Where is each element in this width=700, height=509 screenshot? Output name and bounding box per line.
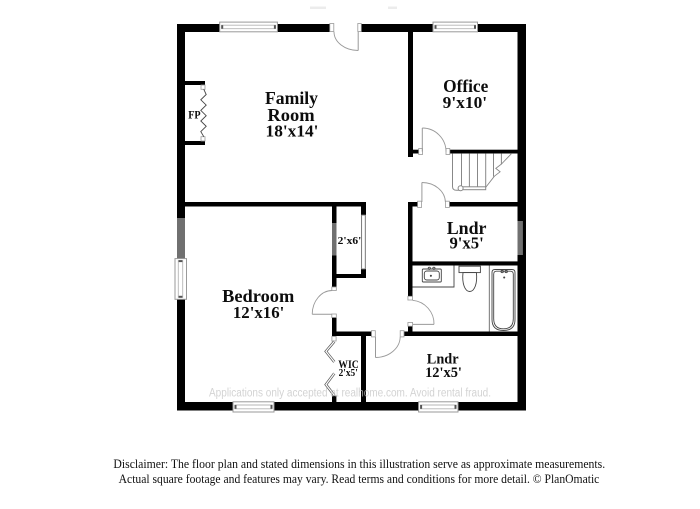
svg-text:Applications only accepted at: Applications only accepted at realhome.c… (209, 388, 491, 400)
svg-text:Actual square footage and feat: Actual square footage and features may v… (119, 472, 600, 486)
svg-text:Disclaimer: The floor plan and: Disclaimer: The floor plan and stated di… (113, 457, 605, 471)
svg-text:2'x6': 2'x6' (338, 236, 362, 247)
svg-text:FP: FP (188, 107, 200, 121)
svg-text:9'x10': 9'x10' (443, 93, 488, 112)
svg-text:12'x16': 12'x16' (233, 303, 284, 322)
svg-text:9'x5': 9'x5' (449, 234, 483, 253)
svg-text:2'x5': 2'x5' (339, 368, 358, 379)
svg-text:12'x5': 12'x5' (425, 365, 462, 381)
svg-text:18'x14': 18'x14' (266, 122, 319, 141)
